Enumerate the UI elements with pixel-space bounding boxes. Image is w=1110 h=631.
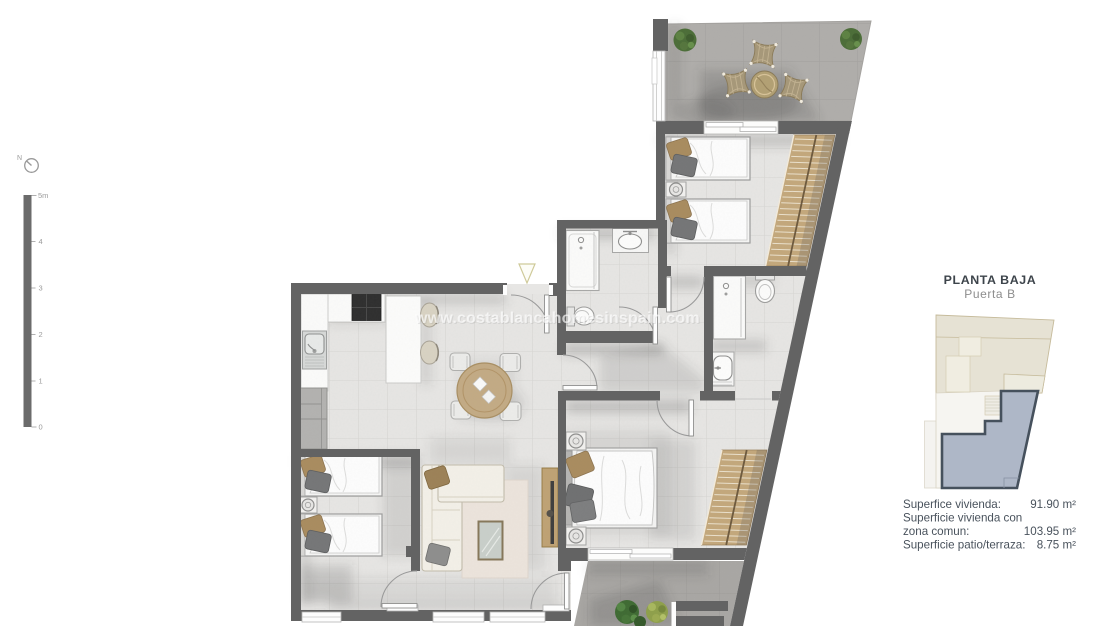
svg-text:2: 2 [39, 330, 43, 339]
svg-text:Superficie vivienda con: Superficie vivienda con [903, 512, 1022, 525]
svg-text:Puerta B: Puerta B [964, 287, 1016, 301]
svg-text:www.costablancahomesinspain.co: www.costablancahomesinspain.com [414, 310, 700, 327]
svg-text:91.90 m²: 91.90 m² [1030, 498, 1076, 511]
svg-text:3: 3 [39, 284, 43, 293]
svg-text:zona comun:: zona comun: [903, 525, 969, 538]
svg-text:4: 4 [39, 237, 43, 246]
svg-text:N: N [17, 155, 22, 162]
svg-text:103.95 m²: 103.95 m² [1024, 525, 1076, 538]
svg-text:1: 1 [39, 377, 43, 386]
svg-text:5m: 5m [38, 191, 48, 200]
svg-text:0: 0 [39, 423, 43, 432]
svg-text:PLANTA BAJA: PLANTA BAJA [944, 273, 1037, 287]
svg-text:8.75 m²: 8.75 m² [1037, 539, 1076, 552]
svg-text:Superficie patio/terraza:: Superficie patio/terraza: [903, 539, 1025, 552]
svg-text:Superfice vivienda:: Superfice vivienda: [903, 498, 1001, 511]
